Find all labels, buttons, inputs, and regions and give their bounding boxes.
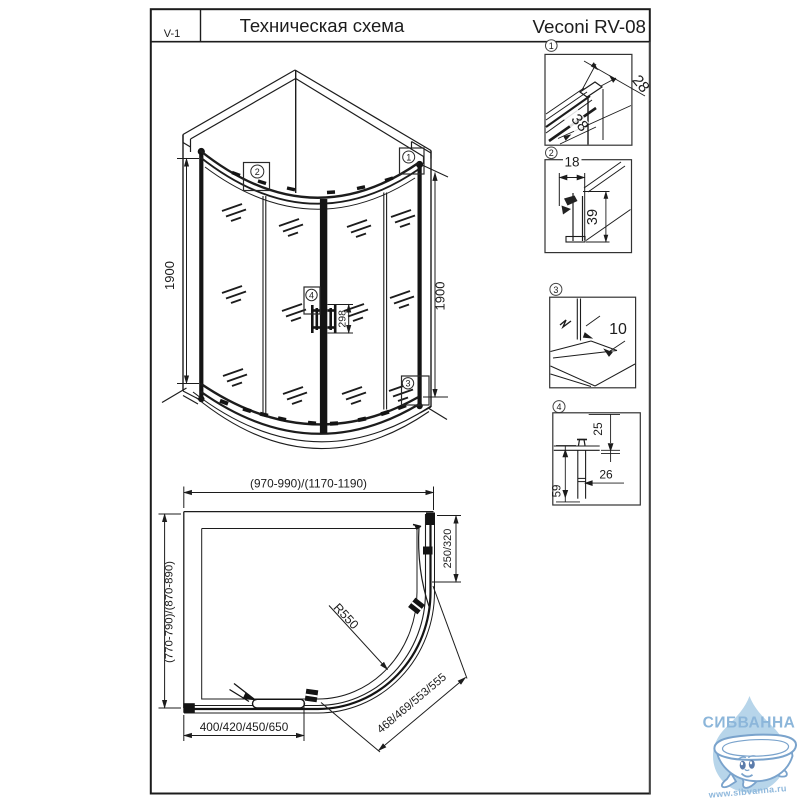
svg-text:4: 4 (556, 402, 561, 412)
svg-text:25: 25 (591, 422, 605, 436)
svg-text:1: 1 (549, 41, 554, 51)
svg-text:26: 26 (599, 468, 613, 482)
svg-text:3: 3 (405, 379, 410, 389)
svg-text:(770-790)/(870-890): (770-790)/(870-890) (164, 561, 176, 663)
svg-text:(970-990)/(1170-1190): (970-990)/(1170-1190) (250, 477, 367, 491)
svg-text:18: 18 (564, 155, 579, 170)
svg-text:250/320: 250/320 (442, 529, 454, 569)
svg-text:298: 298 (337, 310, 349, 328)
svg-text:10: 10 (609, 321, 627, 338)
svg-text:2: 2 (255, 167, 260, 177)
svg-text:1900: 1900 (162, 261, 177, 290)
svg-text:2: 2 (549, 148, 554, 158)
svg-text:Veconi RV-08: Veconi RV-08 (533, 16, 646, 37)
svg-text:39: 39 (585, 209, 601, 225)
svg-text:4: 4 (309, 290, 314, 300)
svg-text:V-1: V-1 (164, 28, 181, 40)
svg-text:1: 1 (406, 152, 411, 162)
svg-text:СИБВАННА: СИБВАННА (703, 715, 796, 732)
svg-text:400/420/450/650: 400/420/450/650 (200, 720, 289, 734)
svg-text:1900: 1900 (433, 282, 448, 311)
svg-text:Техническая схема: Техническая схема (240, 15, 405, 36)
svg-text:59: 59 (552, 485, 564, 498)
svg-text:3: 3 (553, 285, 558, 295)
